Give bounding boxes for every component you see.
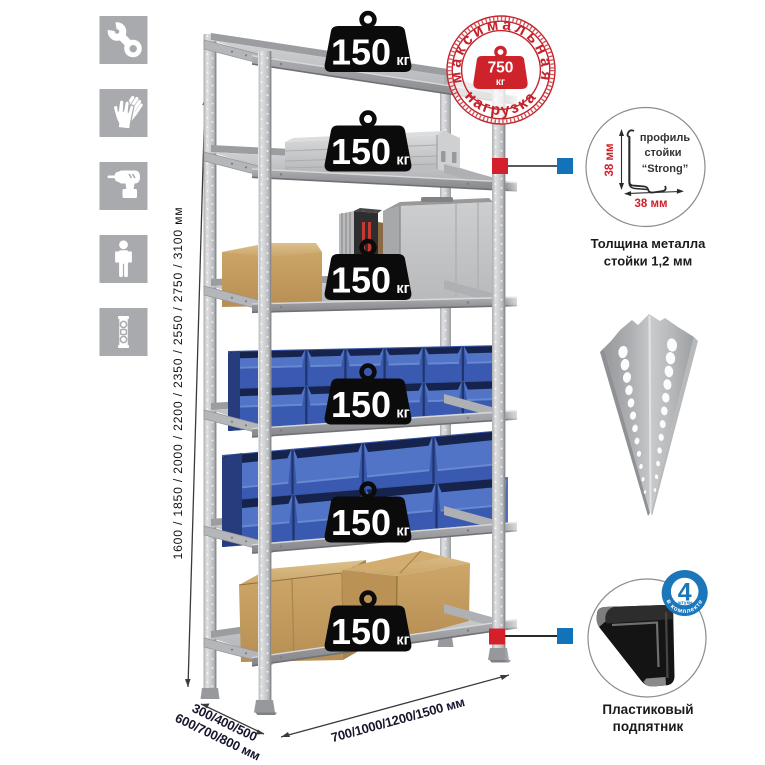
svg-text:стойки 1,2 мм: стойки 1,2 мм xyxy=(604,254,692,269)
svg-text:Пластиковый: Пластиковый xyxy=(602,702,693,717)
svg-text:профиль: профиль xyxy=(640,132,690,144)
svg-text:“Strong”: “Strong” xyxy=(642,163,688,175)
svg-text:38 мм: 38 мм xyxy=(634,198,667,210)
svg-text:Толщина металла: Толщина металла xyxy=(591,236,706,251)
svg-text:750: 750 xyxy=(488,60,514,77)
svg-text:подпятник: подпятник xyxy=(613,719,684,734)
svg-text:стойки: стойки xyxy=(644,147,681,159)
svg-text:38 мм: 38 мм xyxy=(604,143,616,176)
svg-text:кг: кг xyxy=(496,77,505,88)
svg-text:штуки: штуки xyxy=(677,601,692,606)
svg-text:1600 / 1850 / 2000 / 2200 / 23: 1600 / 1850 / 2000 / 2200 / 2350 / 2550 … xyxy=(171,207,185,560)
